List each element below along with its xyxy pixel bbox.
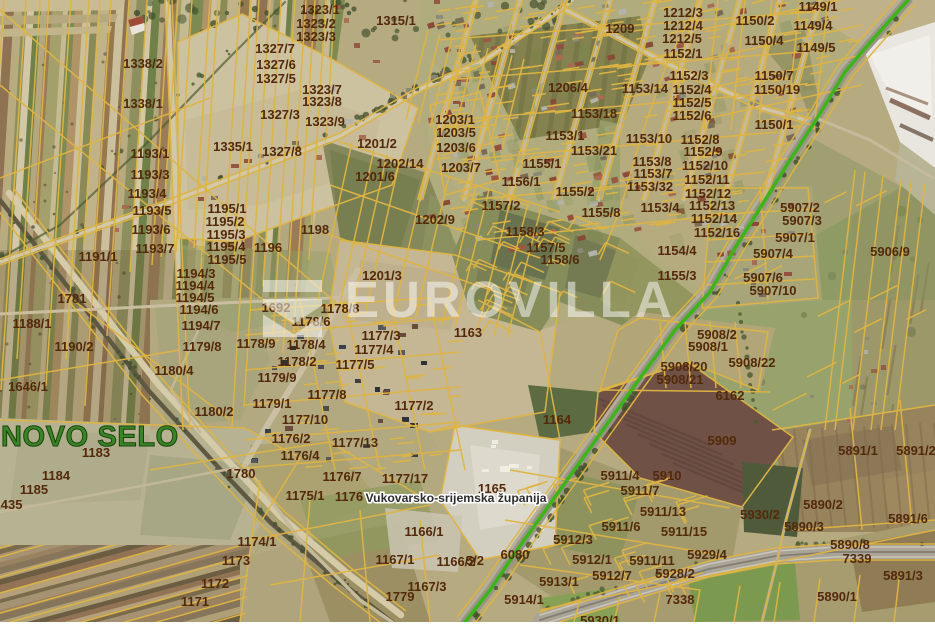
svg-text:5890/3: 5890/3 [784, 519, 824, 534]
svg-text:1158/6: 1158/6 [540, 252, 579, 267]
svg-text:1193/7: 1193/7 [135, 241, 174, 256]
svg-text:1176/2: 1176/2 [271, 431, 310, 446]
svg-text:5906/9: 5906/9 [870, 244, 910, 259]
svg-text:1150/19: 1150/19 [754, 82, 800, 97]
svg-text:1167/1: 1167/1 [375, 552, 414, 567]
svg-text:5890/2: 5890/2 [803, 497, 843, 512]
svg-text:1179/8: 1179/8 [182, 339, 221, 354]
svg-text:5908/21: 5908/21 [657, 372, 704, 387]
svg-text:5910: 5910 [653, 468, 682, 483]
svg-text:5907/1: 5907/1 [775, 230, 815, 245]
svg-text:1191/1: 1191/1 [78, 249, 117, 264]
svg-text:1180/2: 1180/2 [194, 404, 233, 419]
svg-text:5911/4: 5911/4 [600, 468, 640, 483]
svg-text:1195/5: 1195/5 [207, 252, 246, 267]
svg-text:5929/4: 5929/4 [687, 547, 728, 562]
svg-text:1177/5: 1177/5 [335, 357, 374, 372]
svg-text:1185: 1185 [20, 482, 48, 497]
svg-text:1153/14: 1153/14 [622, 81, 669, 96]
svg-text:1174/1: 1174/1 [237, 534, 276, 549]
svg-text:1338/2: 1338/2 [123, 56, 163, 71]
svg-text:1176/4: 1176/4 [280, 448, 320, 463]
svg-text:1201/2: 1201/2 [357, 136, 397, 151]
svg-text:5908/22: 5908/22 [729, 355, 776, 370]
svg-text:5890/8: 5890/8 [830, 537, 870, 552]
svg-text:1196: 1196 [254, 240, 282, 255]
svg-text:5907/3: 5907/3 [782, 213, 822, 228]
svg-text:5/2: 5/2 [466, 553, 484, 568]
svg-text:1152/3: 1152/3 [669, 68, 708, 83]
svg-text:1177/10: 1177/10 [282, 412, 328, 427]
svg-text:1153/32: 1153/32 [627, 179, 673, 194]
svg-text:1212/5: 1212/5 [662, 31, 702, 46]
svg-text:Vukovarsko-srijemska županija: Vukovarsko-srijemska županija [365, 491, 546, 505]
svg-text:1193/4: 1193/4 [127, 186, 167, 201]
svg-text:1156/1: 1156/1 [501, 174, 540, 189]
svg-text:EUROVILLA: EUROVILLA [345, 271, 676, 328]
svg-text:1152/1: 1152/1 [663, 46, 702, 61]
svg-text:5913/1: 5913/1 [539, 574, 579, 589]
svg-text:1327/5: 1327/5 [256, 71, 296, 86]
svg-text:5911/7: 5911/7 [620, 483, 659, 498]
svg-text:1177/4: 1177/4 [354, 342, 394, 357]
svg-text:1152/6: 1152/6 [672, 108, 711, 123]
svg-text:5890/1: 5890/1 [817, 589, 857, 604]
svg-text:1781: 1781 [58, 291, 87, 306]
svg-text:1150/1: 1150/1 [754, 117, 793, 132]
svg-text:1193/1: 1193/1 [130, 146, 169, 161]
svg-text:1201/6: 1201/6 [355, 169, 395, 184]
svg-text:1206/4: 1206/4 [548, 80, 589, 95]
svg-text:1188/1: 1188/1 [12, 316, 51, 331]
svg-text:1152/9: 1152/9 [683, 144, 722, 159]
svg-text:5911/15: 5911/15 [661, 524, 707, 539]
svg-text:1435: 1435 [0, 497, 22, 512]
svg-text:1179/1: 1179/1 [252, 396, 291, 411]
svg-text:5907/10: 5907/10 [750, 283, 797, 298]
svg-text:1193/5: 1193/5 [132, 203, 171, 218]
svg-text:1175/1: 1175/1 [285, 488, 324, 503]
svg-text:7339: 7339 [843, 551, 872, 566]
svg-text:1153/10: 1153/10 [626, 131, 672, 146]
svg-text:1327/7: 1327/7 [255, 41, 295, 56]
svg-text:1184: 1184 [42, 468, 71, 483]
svg-text:1327/3: 1327/3 [260, 107, 300, 122]
svg-text:1209: 1209 [606, 21, 635, 36]
svg-text:5930/1: 5930/1 [580, 613, 620, 622]
svg-text:1158/3: 1158/3 [505, 224, 544, 239]
svg-text:1152/14: 1152/14 [691, 211, 738, 226]
svg-text:1323/9: 1323/9 [305, 114, 345, 129]
svg-text:5911/13: 5911/13 [640, 504, 686, 519]
svg-text:1327/8: 1327/8 [262, 144, 302, 159]
svg-text:1178/2: 1178/2 [277, 354, 316, 369]
svg-text:1203/6: 1203/6 [436, 140, 476, 155]
svg-text:5891/1: 5891/1 [838, 443, 878, 458]
svg-text:1153/4: 1153/4 [640, 200, 680, 215]
svg-text:5909: 5909 [708, 433, 737, 448]
svg-text:1193/3: 1193/3 [130, 167, 169, 182]
svg-text:5928/2: 5928/2 [655, 566, 695, 581]
svg-text:1180/4: 1180/4 [154, 363, 194, 378]
svg-text:1153/21: 1153/21 [571, 143, 617, 158]
svg-text:1153/18: 1153/18 [571, 106, 617, 121]
svg-text:1153/1: 1153/1 [545, 128, 584, 143]
svg-text:1177/2: 1177/2 [394, 398, 433, 413]
svg-text:7338: 7338 [666, 592, 695, 607]
svg-text:1150/7: 1150/7 [754, 68, 793, 83]
svg-text:5891/2: 5891/2 [896, 443, 935, 458]
svg-text:1150/2: 1150/2 [735, 13, 774, 28]
svg-text:1179/9: 1179/9 [257, 370, 296, 385]
svg-text:1149/1: 1149/1 [798, 0, 837, 14]
svg-text:1154/4: 1154/4 [657, 243, 697, 258]
svg-text:1155/8: 1155/8 [581, 205, 620, 220]
svg-text:1155/1: 1155/1 [522, 156, 561, 171]
svg-text:1152/10: 1152/10 [682, 158, 728, 173]
svg-text:1323/3: 1323/3 [296, 29, 336, 44]
svg-text:1203/7: 1203/7 [441, 160, 481, 175]
svg-text:1176/7: 1176/7 [322, 469, 361, 484]
svg-text:1779: 1779 [386, 589, 415, 604]
svg-text:1166/1: 1166/1 [404, 524, 443, 539]
svg-text:5912/3: 5912/3 [553, 532, 593, 547]
svg-text:1150/4: 1150/4 [744, 33, 784, 48]
svg-text:1177/13: 1177/13 [332, 435, 378, 450]
svg-text:5907/4: 5907/4 [753, 246, 794, 261]
svg-text:1171: 1171 [181, 594, 209, 609]
svg-text:1176: 1176 [335, 489, 363, 504]
svg-text:1198: 1198 [301, 222, 329, 237]
svg-text:1152/11: 1152/11 [684, 172, 730, 187]
svg-text:1323/8: 1323/8 [302, 94, 342, 109]
svg-text:1177/8: 1177/8 [307, 387, 346, 402]
svg-text:1149/4: 1149/4 [793, 18, 833, 33]
svg-text:1157/2: 1157/2 [481, 198, 520, 213]
svg-text:1155/2: 1155/2 [555, 184, 594, 199]
svg-text:5891/3: 5891/3 [883, 568, 923, 583]
svg-text:1327/6: 1327/6 [256, 57, 296, 72]
svg-text:5912/1: 5912/1 [572, 552, 612, 567]
svg-text:1152/16: 1152/16 [694, 225, 740, 240]
svg-text:6162: 6162 [716, 388, 745, 403]
svg-text:5908/1: 5908/1 [688, 339, 728, 354]
svg-text:5912/7: 5912/7 [592, 568, 632, 583]
svg-text:1177/3: 1177/3 [361, 328, 400, 343]
svg-text:1193/6: 1193/6 [131, 222, 170, 237]
svg-text:NOVO SELO: NOVO SELO [1, 421, 179, 453]
svg-text:1194/7: 1194/7 [181, 318, 220, 333]
svg-text:1149/5: 1149/5 [796, 40, 835, 55]
svg-text:1178/4: 1178/4 [286, 337, 326, 352]
svg-text:6080: 6080 [501, 547, 530, 562]
svg-text:1780: 1780 [227, 466, 256, 481]
svg-text:5930/2: 5930/2 [740, 507, 780, 522]
svg-text:1315/1: 1315/1 [376, 13, 416, 28]
svg-text:1178/9: 1178/9 [236, 336, 275, 351]
svg-text:1177/17: 1177/17 [382, 471, 428, 486]
svg-text:1203/5: 1203/5 [436, 125, 476, 140]
svg-text:1172: 1172 [201, 576, 229, 591]
svg-text:1194/6: 1194/6 [179, 302, 218, 317]
svg-text:1164: 1164 [543, 412, 572, 427]
svg-text:5911/6: 5911/6 [601, 519, 640, 534]
svg-text:5891/6: 5891/6 [888, 511, 928, 526]
svg-text:1323/1: 1323/1 [300, 2, 340, 17]
svg-text:1338/1: 1338/1 [123, 96, 163, 111]
svg-text:1173: 1173 [222, 553, 250, 568]
svg-text:5914/1: 5914/1 [504, 592, 544, 607]
svg-text:1646/1: 1646/1 [8, 379, 48, 394]
svg-text:1190/2: 1190/2 [54, 339, 93, 354]
svg-text:1335/1: 1335/1 [213, 139, 253, 154]
svg-text:1202/9: 1202/9 [415, 212, 455, 227]
